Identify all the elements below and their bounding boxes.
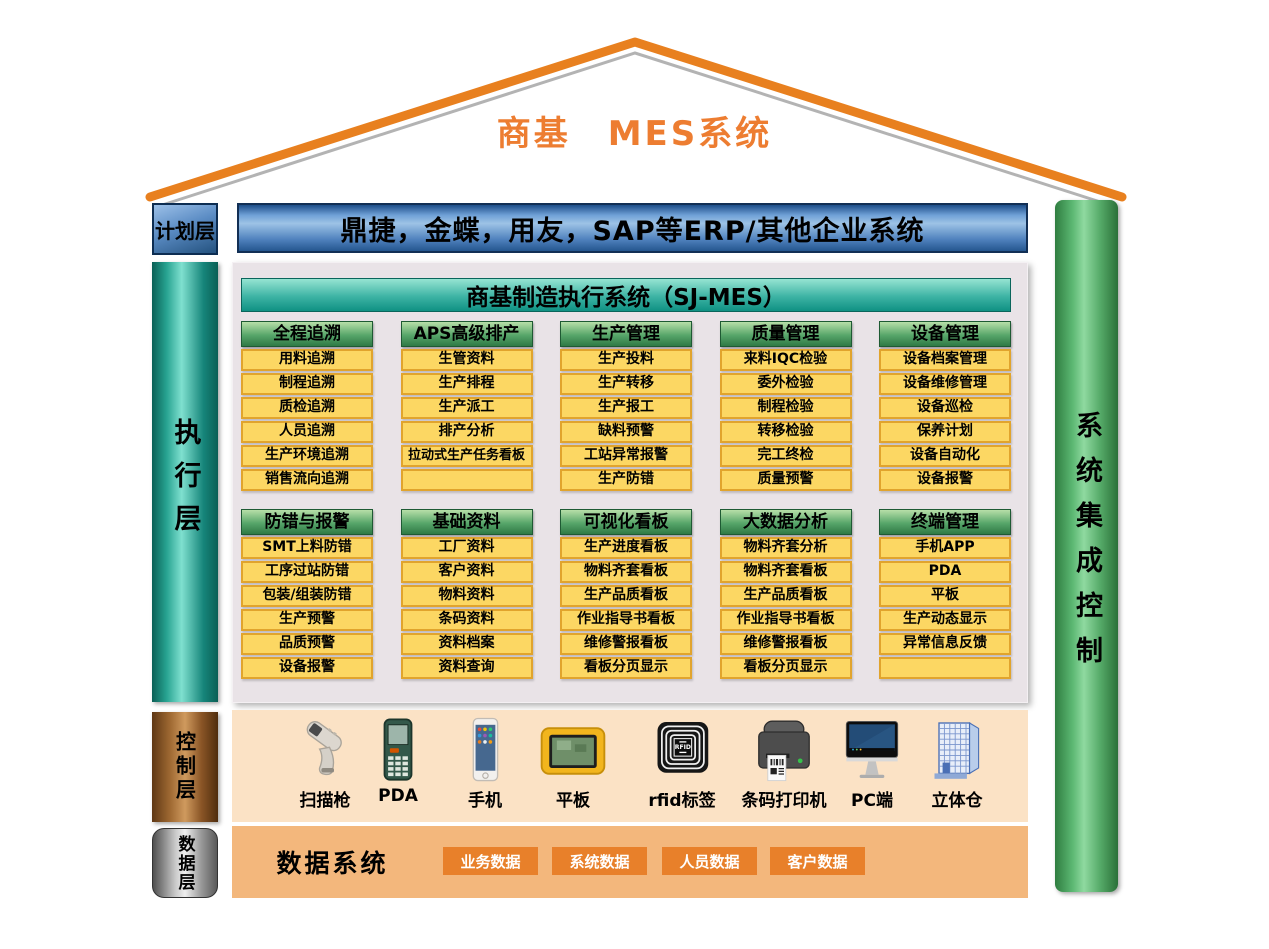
device-barcode-printer: 条码打印机 [734, 712, 834, 811]
device-label: 立体仓 [907, 786, 1007, 811]
mes-item: 生产报工 [560, 397, 692, 419]
sjmes-header-text: 商基制造执行系统（SJ-MES） [466, 278, 786, 312]
mes-item: 包装/组装防错 [241, 585, 373, 607]
mes-item: 看板分页显示 [560, 657, 692, 679]
mes-item: 维修警报看板 [720, 633, 852, 655]
mes-item: 客户资料 [401, 561, 533, 583]
mes-item: 设备档案管理 [879, 349, 1011, 371]
device-label: PDA [348, 786, 448, 806]
mes-item: 工厂资料 [401, 537, 533, 559]
mes-item: 物料齐套看板 [560, 561, 692, 583]
mes-item: 制程检验 [720, 397, 852, 419]
mes-item: 物料齐套看板 [720, 561, 852, 583]
mes-item: 品质预警 [241, 633, 373, 655]
mes-item: 生管资料 [401, 349, 533, 371]
device-phone: 手机 [435, 712, 535, 811]
mes-item [401, 469, 533, 491]
column-header: 全程追溯 [241, 321, 373, 347]
column-equipment: 设备管理 设备档案管理 设备维修管理 设备巡检 保养计划 设备自动化 设备报警 [879, 321, 1011, 491]
device-label: rfid标签 [632, 786, 732, 811]
mes-item [879, 657, 1011, 679]
mes-item: 看板分页显示 [720, 657, 852, 679]
mes-item: 资料查询 [401, 657, 533, 679]
device-label: 平板 [523, 786, 623, 811]
column-error-proofing: 防错与报警 SMT上料防错 工序过站防错 包装/组装防错 生产预警 品质预警 设… [241, 509, 373, 679]
mes-item: 制程追溯 [241, 373, 373, 395]
data-box-business: 业务数据 [443, 847, 538, 875]
data-system-label: 数据系统 [260, 826, 405, 898]
column-header: 设备管理 [879, 321, 1011, 347]
mes-item: 设备报警 [241, 657, 373, 679]
column-header: 生产管理 [560, 321, 692, 347]
diagram-title: 商基 MES系统 [0, 106, 1269, 155]
column-terminals: 终端管理 手机APP PDA 平板 生产动态显示 异常信息反馈 [879, 509, 1011, 679]
mes-item: 设备自动化 [879, 445, 1011, 467]
mes-panel: 商基制造执行系统（SJ-MES） 全程追溯 用料追溯 制程追溯 质检追溯 人员追… [232, 262, 1028, 703]
mes-item: 物料资料 [401, 585, 533, 607]
mes-item: 排产分析 [401, 421, 533, 443]
phone-icon [435, 712, 535, 785]
mes-sections-row1: 全程追溯 用料追溯 制程追溯 质检追溯 人员追溯 生产环境追溯 销售流向追溯 A… [241, 321, 1011, 491]
sjmes-header: 商基制造执行系统（SJ-MES） [241, 278, 1011, 312]
mes-item: 资料档案 [401, 633, 533, 655]
rfid-tag-icon: RFID [632, 712, 732, 785]
device-label: 条码打印机 [734, 786, 834, 811]
column-header: 终端管理 [879, 509, 1011, 535]
mes-item: 来料IQC检验 [720, 349, 852, 371]
mes-item: 作业指导书看板 [560, 609, 692, 631]
mes-item: 设备报警 [879, 469, 1011, 491]
mes-item: 生产投料 [560, 349, 692, 371]
data-layer-tab: 数据层 [152, 828, 218, 898]
device-label: 手机 [435, 786, 535, 811]
tablet-icon [523, 712, 623, 785]
mes-sections-row2: 防错与报警 SMT上料防错 工序过站防错 包装/组装防错 生产预警 品质预警 设… [241, 509, 1011, 679]
mes-item: 销售流向追溯 [241, 469, 373, 491]
mes-item: 生产预警 [241, 609, 373, 631]
device-pda: PDA [348, 712, 448, 806]
control-layer-area: 扫描枪 PDA [232, 710, 1028, 822]
mes-item: 生产防错 [560, 469, 692, 491]
control-layer-label: 控制层 [171, 731, 200, 803]
warehouse-icon [907, 712, 1007, 785]
mes-item: PDA [879, 561, 1011, 583]
plan-layer-label: 计划层 [155, 215, 215, 244]
mes-item: 物料齐套分析 [720, 537, 852, 559]
column-production: 生产管理 生产投料 生产转移 生产报工 缺料预警 工站异常报警 生产防错 [560, 321, 692, 491]
mes-item: 人员追溯 [241, 421, 373, 443]
mes-item: 保养计划 [879, 421, 1011, 443]
column-header: 防错与报警 [241, 509, 373, 535]
column-header: 大数据分析 [720, 509, 852, 535]
data-box-system: 系统数据 [552, 847, 647, 875]
data-box-personnel: 人员数据 [662, 847, 757, 875]
system-integration-label: 系统集成控制 [1067, 411, 1106, 681]
mes-item: 维修警报看板 [560, 633, 692, 655]
mes-item: 生产品质看板 [560, 585, 692, 607]
device-tablet: 平板 [523, 712, 623, 811]
svg-text:RFID: RFID [675, 744, 691, 751]
mes-item: 作业指导书看板 [720, 609, 852, 631]
mes-item: 用料追溯 [241, 349, 373, 371]
plan-layer-tab: 计划层 [152, 203, 218, 255]
mes-item: 手机APP [879, 537, 1011, 559]
device-rfid: RFID rfid标签 [632, 712, 732, 811]
mes-item: SMT上料防错 [241, 537, 373, 559]
column-dashboards: 可视化看板 生产进度看板 物料齐套看板 生产品质看板 作业指导书看板 维修警报看… [560, 509, 692, 679]
mes-architecture-diagram: 商基 MES系统 计划层 鼎捷，金蝶，用友，SAP等ERP/其他企业系统 执行层… [0, 0, 1269, 949]
pda-icon [348, 712, 448, 785]
mes-item: 生产派工 [401, 397, 533, 419]
control-layer-tab: 控制层 [152, 712, 218, 822]
mes-item: 条码资料 [401, 609, 533, 631]
system-integration-bar: 系统集成控制 [1055, 200, 1118, 892]
mes-item: 质检追溯 [241, 397, 373, 419]
mes-item: 委外检验 [720, 373, 852, 395]
mes-item: 生产进度看板 [560, 537, 692, 559]
mes-item: 生产动态显示 [879, 609, 1011, 631]
mes-item: 工站异常报警 [560, 445, 692, 467]
mes-item: 质量预警 [720, 469, 852, 491]
data-box-customer: 客户数据 [770, 847, 865, 875]
barcode-printer-icon [734, 712, 834, 785]
column-base-data: 基础资料 工厂资料 客户资料 物料资料 条码资料 资料档案 资料查询 [401, 509, 533, 679]
erp-systems-bar: 鼎捷，金蝶，用友，SAP等ERP/其他企业系统 [237, 203, 1028, 253]
data-layer-area: 数据系统 业务数据 系统数据 人员数据 客户数据 [232, 826, 1028, 898]
mes-item: 拉动式生产任务看板 [401, 445, 533, 467]
mes-item: 生产环境追溯 [241, 445, 373, 467]
mes-item: 平板 [879, 585, 1011, 607]
mes-item: 生产品质看板 [720, 585, 852, 607]
execution-layer-tab: 执行层 [152, 262, 218, 702]
mes-item: 异常信息反馈 [879, 633, 1011, 655]
column-header: 质量管理 [720, 321, 852, 347]
mes-item: 转移检验 [720, 421, 852, 443]
mes-item: 缺料预警 [560, 421, 692, 443]
mes-item: 生产排程 [401, 373, 533, 395]
column-aps: APS高级排产 生管资料 生产排程 生产派工 排产分析 拉动式生产任务看板 [401, 321, 533, 491]
column-header: APS高级排产 [401, 321, 533, 347]
mes-item: 设备维修管理 [879, 373, 1011, 395]
column-header: 基础资料 [401, 509, 533, 535]
column-header: 可视化看板 [560, 509, 692, 535]
mes-item: 完工终检 [720, 445, 852, 467]
erp-systems-text: 鼎捷，金蝶，用友，SAP等ERP/其他企业系统 [340, 209, 924, 248]
mes-item: 设备巡检 [879, 397, 1011, 419]
column-big-data: 大数据分析 物料齐套分析 物料齐套看板 生产品质看板 作业指导书看板 维修警报看… [720, 509, 852, 679]
mes-item: 工序过站防错 [241, 561, 373, 583]
column-full-trace: 全程追溯 用料追溯 制程追溯 质检追溯 人员追溯 生产环境追溯 销售流向追溯 [241, 321, 373, 491]
data-layer-label: 数据层 [173, 835, 198, 892]
mes-item: 生产转移 [560, 373, 692, 395]
execution-layer-label: 执行层 [166, 418, 205, 547]
column-quality: 质量管理 来料IQC检验 委外检验 制程检验 转移检验 完工终检 质量预警 [720, 321, 852, 491]
device-warehouse: 立体仓 [907, 712, 1007, 811]
